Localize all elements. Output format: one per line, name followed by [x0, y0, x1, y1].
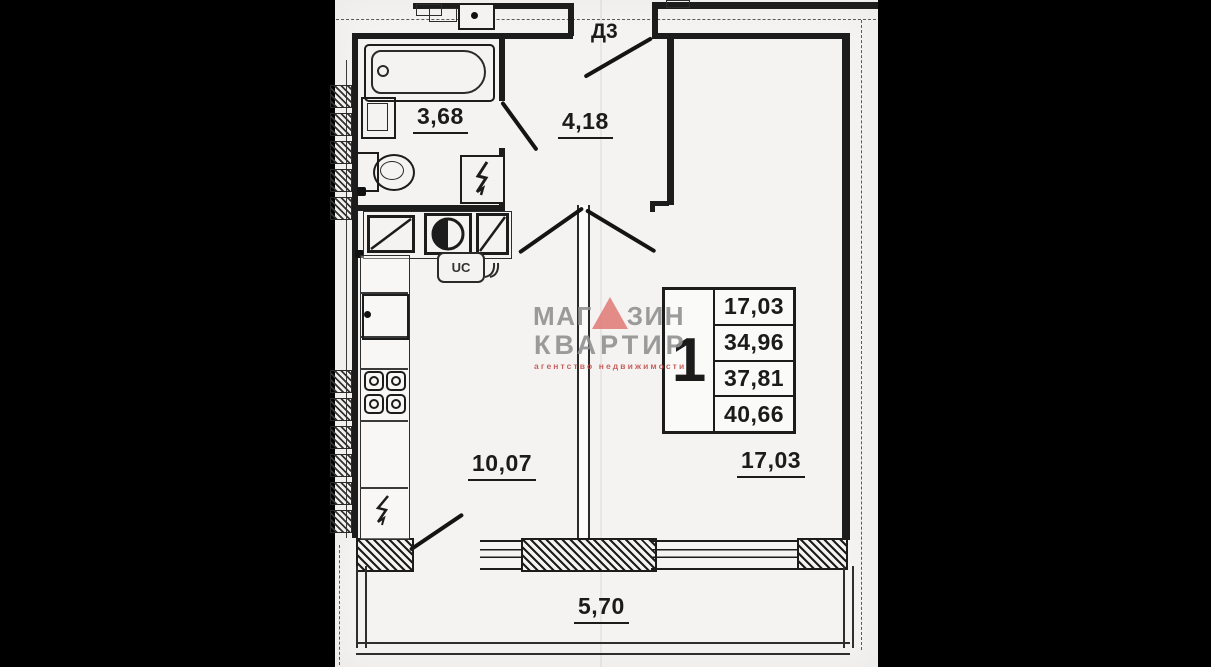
bathtub-drain [377, 65, 389, 77]
bathroom-area-label: 3,68 [413, 103, 468, 134]
balcony-left-edge [356, 566, 367, 648]
wall-tie [330, 398, 352, 421]
vent-shaft-icon [429, 8, 457, 22]
partition-foot-stub [650, 201, 655, 212]
watermark-word1-suffix: ЗИН [627, 303, 685, 329]
wall-tie [330, 454, 352, 477]
wall-tie [330, 426, 352, 449]
washbasin-icon [361, 97, 396, 139]
balcony-right-edge [843, 566, 854, 648]
watermark-word2: КВАРТИР [534, 332, 684, 359]
watermark-tagline: агентство недвижимости [534, 362, 684, 371]
wall-pier-right [797, 538, 848, 570]
agency-watermark: МАГ ЗИН КВАРТИР агентство недвижимости [534, 297, 684, 371]
wall-tie [330, 510, 352, 533]
area-row-living: 17,03 [715, 290, 793, 326]
pipe-riser-dot [357, 187, 366, 196]
hallway-partition-wall [667, 39, 674, 205]
stove-icon [362, 369, 408, 419]
axis-line-left-bottom [339, 545, 340, 665]
balcony-length-label: 5,70 [574, 593, 629, 624]
central-partition-wall [577, 205, 590, 540]
area-row-total: 37,81 [715, 362, 793, 398]
area-row-overall: 40,66 [715, 397, 793, 431]
hallway-area-label: 4,18 [558, 108, 613, 139]
counter-divider [360, 420, 408, 422]
watermark-triangle-icon [592, 297, 628, 329]
round-sink-icon [424, 213, 472, 255]
water-heater-lightning-icon [460, 155, 505, 204]
wall-tie [330, 482, 352, 505]
bathtub-icon [364, 44, 495, 102]
dishwasher-icon [476, 213, 509, 255]
kitchen-sink-tap-dot [364, 311, 371, 318]
area-row-usable: 34,96 [715, 326, 793, 362]
washbasin-bowl [367, 103, 388, 131]
toilet-bowl-inner [380, 161, 404, 180]
floor-plan-screenshot: UC Д3 3,68 4,18 10,07 17,03 [0, 0, 1211, 667]
wall-tie [330, 141, 352, 164]
fridge-lightning-icon [368, 492, 400, 528]
roof-mark [666, 0, 690, 8]
wall-pier-center [521, 538, 657, 572]
wall-tie [330, 197, 352, 220]
living-room-area-label: 17,03 [737, 447, 805, 478]
pipe-bend-icon [481, 253, 501, 279]
bathroom-east-wall-upper [499, 39, 505, 101]
wall-tie [330, 370, 352, 393]
right-wall [842, 33, 850, 540]
vent-shaft-icon [458, 3, 495, 30]
kitchen-area-label: 10,07 [468, 450, 536, 481]
axis-line-right [861, 20, 862, 650]
entrance-door-label: Д3 [591, 20, 618, 44]
wall-tie [330, 113, 352, 136]
top-wall-left [352, 33, 573, 39]
left-wall [352, 33, 358, 538]
entry-niche-jamb [568, 3, 574, 36]
vent-dot [471, 12, 478, 19]
top-wall-right [652, 33, 848, 39]
counter-divider [360, 487, 408, 489]
utility-box-label: UC [452, 260, 471, 275]
balcony-railing [356, 642, 850, 655]
washing-machine-icon [367, 215, 415, 253]
window-kitchen [480, 540, 523, 570]
wall-tie [330, 85, 352, 108]
watermark-word1-prefix: МАГ [533, 303, 593, 329]
wall-tie [330, 169, 352, 192]
toilet-bowl [373, 154, 415, 191]
window-living-room [651, 540, 799, 570]
utility-box: UC [437, 252, 485, 283]
